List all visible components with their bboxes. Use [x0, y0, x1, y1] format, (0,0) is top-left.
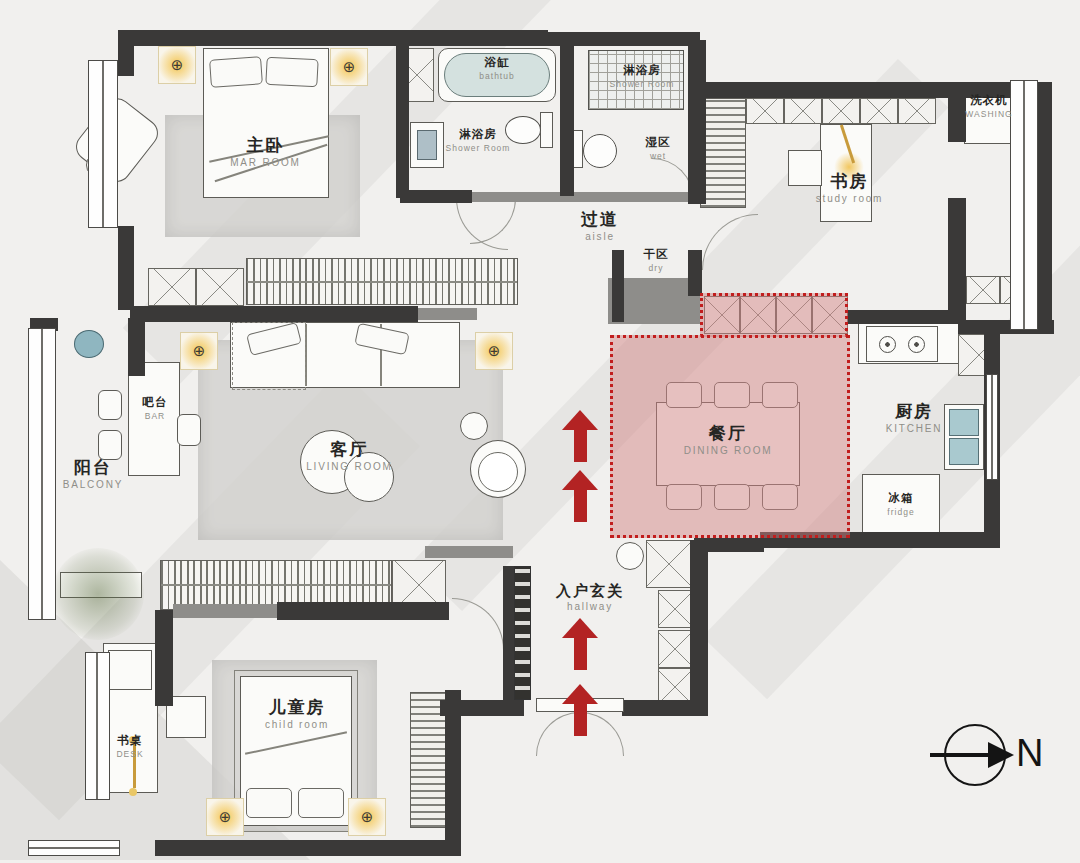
ceiling-light-icon: ⊕ — [180, 332, 218, 370]
shower-drain — [417, 130, 437, 160]
door-swing-arc — [452, 598, 504, 650]
room-label-wet-zone: 湿区 wet — [630, 136, 686, 161]
fridge — [862, 474, 940, 534]
pillow — [246, 788, 292, 818]
wall — [400, 190, 472, 203]
burner-icon — [908, 336, 925, 353]
bar-counter — [128, 362, 180, 476]
balcony-basin — [74, 330, 104, 358]
laundry-cabinet — [966, 276, 1000, 304]
room-label-aisle: 过道 aisle — [558, 210, 642, 243]
window — [85, 652, 110, 800]
window — [88, 60, 118, 228]
ceiling-light-icon: ⊕ — [206, 798, 244, 836]
wall-light — [425, 546, 513, 558]
pillow — [298, 788, 344, 818]
label-zh: 入户玄关 — [538, 582, 642, 600]
hall-cabinet — [658, 630, 692, 668]
label-en: hallway — [538, 601, 642, 613]
wall — [690, 540, 708, 712]
desk-lamp-cord — [133, 742, 136, 788]
study-cabinet — [860, 98, 898, 124]
room-label-balcony: 阳台 BALCONY — [48, 458, 138, 491]
wardrobe-cabinet — [196, 268, 244, 306]
plant-icon — [52, 548, 144, 640]
bookshelf — [700, 98, 746, 208]
wall — [118, 226, 134, 310]
light-symbol: ⊕ — [488, 342, 501, 360]
wall — [130, 306, 418, 322]
wall — [128, 318, 145, 376]
ceiling-light-icon: ⊕ — [348, 798, 386, 836]
light-symbol: ⊕ — [361, 808, 374, 826]
label-zh: 湿区 — [630, 136, 686, 150]
wall-light — [173, 604, 277, 618]
study-chair — [788, 150, 822, 186]
label-zh: 过道 — [558, 210, 642, 230]
pillow — [265, 57, 318, 88]
room-label-entry-hall: 入户玄关 hallway — [538, 582, 642, 613]
wall-light — [470, 192, 688, 202]
compass-arrowhead — [988, 742, 1014, 768]
wall — [948, 92, 966, 142]
wall — [155, 840, 461, 856]
light-symbol: ⊕ — [171, 56, 184, 74]
dining-highlight-zone — [610, 335, 850, 538]
gas-stove — [866, 326, 938, 362]
bar-chair — [177, 414, 201, 446]
bar-stool — [98, 430, 122, 460]
ceiling-light-icon: ⊕ — [475, 332, 513, 370]
floor-plan-canvas: ⊕ ⊕ — [0, 0, 1080, 863]
pillow — [209, 56, 263, 88]
study-cabinet — [898, 98, 936, 124]
dining-highlight-zone — [700, 293, 848, 337]
study-cabinet — [746, 98, 784, 124]
wall-light — [415, 308, 477, 320]
wall — [622, 700, 708, 716]
wall — [118, 30, 548, 46]
toilet-tank — [540, 112, 553, 148]
hall-cabinet — [646, 540, 692, 588]
lamp-dot-icon — [129, 736, 137, 744]
window — [986, 374, 998, 480]
coffee-table — [344, 452, 394, 502]
north-label: N — [1016, 732, 1043, 775]
label-en: Shower Room — [432, 143, 524, 153]
wall — [958, 320, 1054, 334]
door-swing-arc — [470, 198, 516, 244]
window — [1010, 80, 1038, 330]
room-label-dry-zone: 干区 dry — [626, 248, 686, 273]
wall — [688, 250, 702, 296]
ceiling-light-icon: ⊕ — [330, 48, 368, 86]
wardrobe-hanging-rail — [246, 258, 518, 305]
wall — [503, 566, 514, 700]
door-swing-arc — [702, 214, 758, 270]
burner-icon — [879, 336, 896, 353]
entry-direction-arrow-icon — [562, 410, 598, 464]
study-cabinet — [822, 98, 860, 124]
light-symbol: ⊕ — [219, 808, 232, 826]
wall — [1038, 82, 1052, 334]
guest-shower-tiles — [588, 50, 684, 110]
wall — [118, 30, 134, 76]
bathtub-basin — [444, 53, 550, 97]
label-zh: 阳台 — [48, 458, 138, 478]
wall — [948, 198, 966, 322]
wall — [155, 610, 173, 706]
label-en: aisle — [558, 231, 642, 243]
lamp-dot-icon — [129, 788, 137, 796]
entry-direction-arrow-icon — [562, 618, 598, 672]
desk-shelf — [108, 650, 152, 690]
wall — [688, 40, 706, 204]
study-cabinet — [784, 98, 822, 124]
wall — [445, 690, 461, 856]
wall — [706, 82, 1040, 98]
wall — [277, 602, 449, 620]
wardrobe-cabinet — [148, 268, 196, 306]
light-symbol: ⊕ — [343, 58, 356, 76]
shoe-cabinet — [514, 566, 531, 700]
ball-chair-seat — [478, 452, 518, 492]
window — [28, 840, 120, 856]
toilet-bowl — [583, 134, 617, 168]
wall — [396, 46, 409, 198]
toilet-bowl — [505, 116, 541, 144]
entry-direction-arrow-icon — [562, 470, 598, 524]
hall-round-stool — [616, 542, 644, 570]
wall — [612, 250, 624, 322]
wall — [848, 310, 962, 324]
label-en: BALCONY — [48, 479, 138, 491]
wall — [560, 36, 574, 196]
compass-needle — [930, 753, 992, 757]
label-zh: 干区 — [626, 248, 686, 262]
label-en: dry — [626, 263, 686, 273]
light-symbol: ⊕ — [193, 342, 206, 360]
ceiling-light-icon: ⊕ — [158, 46, 196, 84]
entry-direction-arrow-icon — [562, 684, 598, 738]
pouf — [460, 412, 488, 440]
hall-cabinet — [658, 590, 692, 628]
sink-basin — [949, 438, 979, 465]
bar-stool — [98, 390, 122, 420]
window — [28, 328, 56, 620]
sink-basin — [949, 409, 979, 436]
